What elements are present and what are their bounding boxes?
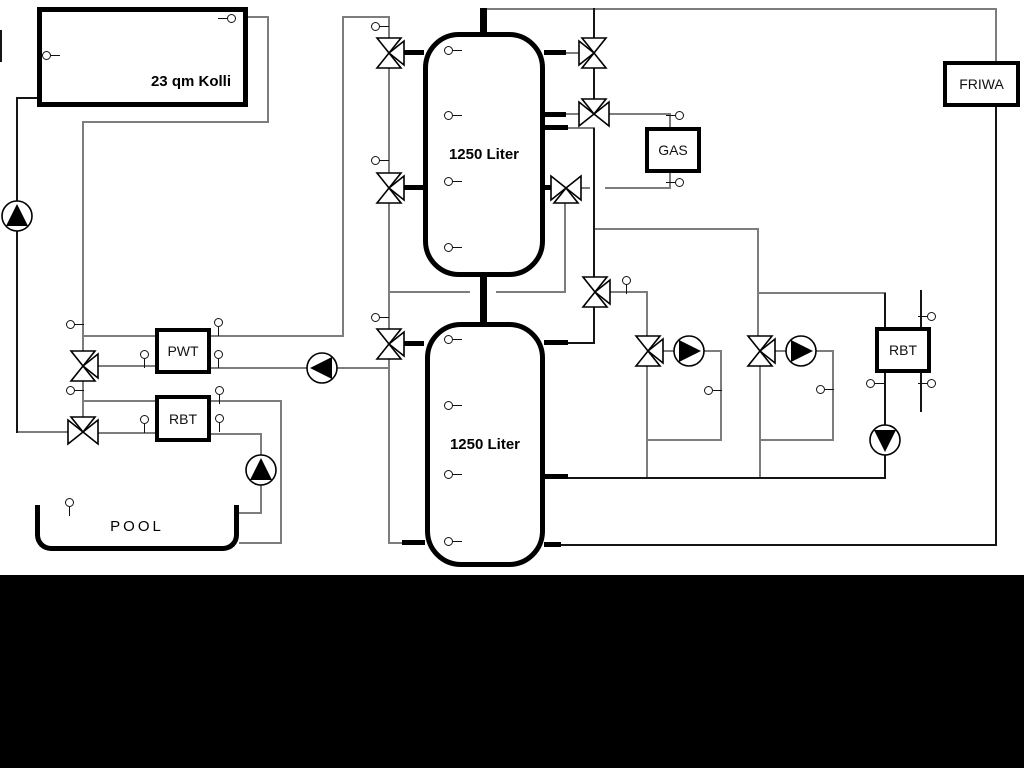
temp-sensor [66, 320, 75, 329]
gas-flow-3way-valve-icon [576, 35, 612, 71]
temp-sensor [214, 318, 223, 327]
rbt-left-label: RBT [169, 411, 197, 427]
temp-sensor [214, 350, 223, 359]
temp-sensor [215, 386, 224, 395]
gas-label: GAS [658, 142, 688, 158]
pipe-pwt-top-left [83, 335, 155, 337]
port-upper-right-top [544, 50, 566, 55]
gas-return-3way-valve-icon [548, 170, 584, 206]
heating-supply-3way-valve-icon [577, 274, 613, 310]
hydraulic-schematic: 23 qm Kolli 1250 Liter 1250 Liter PWT RB… [0, 0, 1024, 768]
pipe-crossline-a [389, 291, 470, 293]
pipe-pwt-top-right [210, 335, 344, 337]
pipe-charge-manifold [388, 16, 390, 544]
port-lower-left-bottom [402, 540, 425, 545]
temp-sensor [927, 379, 936, 388]
temp-sensor [444, 470, 453, 479]
friwa-label: FRIWA [959, 76, 1004, 92]
port-upper-right-mid2 [544, 125, 568, 130]
temp-sensor [65, 498, 74, 507]
pipe-tank-top-thick [480, 8, 487, 34]
pipe-collector-flow-top [247, 16, 269, 18]
temp-sensor [444, 537, 453, 546]
temp-sensor [371, 22, 380, 31]
temp-sensor [675, 178, 684, 187]
pipe-supply-riser [593, 128, 595, 278]
pipe-pool-return-down [280, 400, 282, 544]
pipe-hc2-loop-bottom [759, 439, 834, 441]
collector-label: 23 qm Kolli [151, 73, 231, 90]
pipe-rbt2-supply [757, 292, 886, 294]
pwt-heat-exchanger: PWT [155, 328, 211, 374]
pool-pump-icon [243, 452, 279, 488]
temp-sensor [66, 386, 75, 395]
pipe-hc2-supply-down [757, 228, 759, 336]
pipe-hc2-return-down [759, 366, 761, 478]
temp-sensor [371, 156, 380, 165]
temp-sensor [622, 276, 631, 285]
gas-boiler: GAS [645, 127, 701, 173]
friwa-station: FRIWA [943, 61, 1020, 107]
pipe-gas-flow [608, 113, 670, 115]
pipe-hc1-return-down [646, 366, 648, 478]
temp-sensor [227, 14, 236, 23]
solar-return-3way-valve-icon [65, 414, 101, 450]
heating-circuit-2-valve-icon [742, 333, 778, 369]
pipe-tank-connector-thick [480, 275, 487, 324]
tank-upper-label: 1250 Liter [449, 146, 519, 163]
pipe-rbt-top-left [83, 400, 155, 402]
pipe-pool-return-link [239, 542, 282, 544]
temp-sensor [444, 46, 453, 55]
solar-pwt-3way-valve-icon [65, 348, 101, 384]
tank-charge-low-3way-valve-icon [371, 326, 407, 362]
pipe-friwa-return-down [995, 107, 997, 546]
pipe-hot-header [483, 8, 997, 10]
pipe-riser-top-link [342, 16, 390, 18]
heating-circuit-1-valve-icon [630, 333, 666, 369]
pipe-solar-return [16, 97, 18, 433]
tank-lower-label: 1250 Liter [450, 436, 520, 453]
pipe-hc2-loop-down [832, 350, 834, 441]
rbt-left-heat-exchanger: RBT [155, 395, 211, 442]
temp-sensor [215, 414, 224, 423]
pipe-rbt-top-right [210, 400, 282, 402]
temp-sensor [704, 386, 713, 395]
port-lower-right-mid [544, 474, 568, 479]
buffer-tank-lower: 1250 Liter [425, 322, 545, 567]
pipe-collector-flow-under [82, 121, 269, 123]
pipe-hc1-loop-down [720, 350, 722, 441]
pipe-supplyvalve-jog [568, 342, 594, 344]
pipe-friwa-top-link [995, 8, 997, 62]
buffer-tank-upper: 1250 Liter [423, 32, 545, 277]
temp-sensor [444, 177, 453, 186]
pool-label: POOL [40, 518, 234, 535]
pipe-collector-flow-down [82, 121, 84, 353]
pipe-rbt-bottom-right [210, 433, 262, 435]
pipe-hc1-supply-down [646, 291, 648, 337]
solar-collector: 23 qm Kolli [37, 7, 248, 107]
pipe-supplyvalve-down [593, 306, 595, 344]
port-upper-right-mid1 [544, 112, 566, 117]
temp-sensor [140, 350, 149, 359]
pipe-rbt-bottom-left [97, 432, 155, 434]
pipe-heating-branch [594, 228, 759, 230]
pipe-friwa-return-bottom [560, 544, 997, 546]
pwt-label: PWT [167, 343, 198, 359]
pipe-rbt2-top [884, 293, 886, 328]
pipe-pwt-bottom-right [210, 367, 390, 369]
temp-sensor [866, 379, 875, 388]
temp-sensor [140, 415, 149, 424]
pool-basin: POOL [35, 505, 239, 551]
heating-circuit-2-pump-icon [783, 333, 819, 369]
tank-charge-top-3way-valve-icon [371, 35, 407, 71]
temp-sensor [816, 385, 825, 394]
temp-sensor [42, 51, 51, 60]
temp-sensor [444, 243, 453, 252]
rbt-right-label: RBT [889, 342, 917, 358]
pipe-hc1-loop-bottom [646, 439, 722, 441]
heating-circuit-1-pump-icon [671, 333, 707, 369]
pipe-solar-return-top [17, 97, 39, 99]
temp-sensor [675, 111, 684, 120]
pwt-pump-icon [304, 350, 340, 386]
temp-sensor [371, 313, 380, 322]
edge-artifact [0, 30, 2, 62]
pipe-pool-flow-link [239, 512, 262, 514]
rbt-right-pump-icon [867, 422, 903, 458]
temp-sensor [927, 312, 936, 321]
pipe-pwt-bottom-left [97, 365, 155, 367]
temp-sensor [444, 335, 453, 344]
pipe-valve2-left [17, 431, 69, 433]
pipe-heating-return [566, 477, 886, 479]
solar-pump-icon [0, 198, 35, 234]
pipe-collector-flow-right [267, 16, 269, 123]
gas-mid-3way-valve-icon [576, 96, 612, 132]
temp-sensor [444, 111, 453, 120]
pipe-gas-return-down [564, 202, 566, 293]
tank-charge-mid-3way-valve-icon [371, 170, 407, 206]
port-lower-right-top [544, 340, 568, 345]
pipe-crossline-b [496, 291, 566, 293]
rbt-right-heat-exchanger: RBT [875, 327, 931, 373]
pipe-riser-left [342, 16, 344, 337]
port-lower-right-bottom [544, 542, 561, 547]
pipe-hc1-supply [609, 291, 648, 293]
bottom-black-band [0, 575, 1024, 768]
pipe-gas-return [605, 187, 670, 189]
temp-sensor [444, 401, 453, 410]
